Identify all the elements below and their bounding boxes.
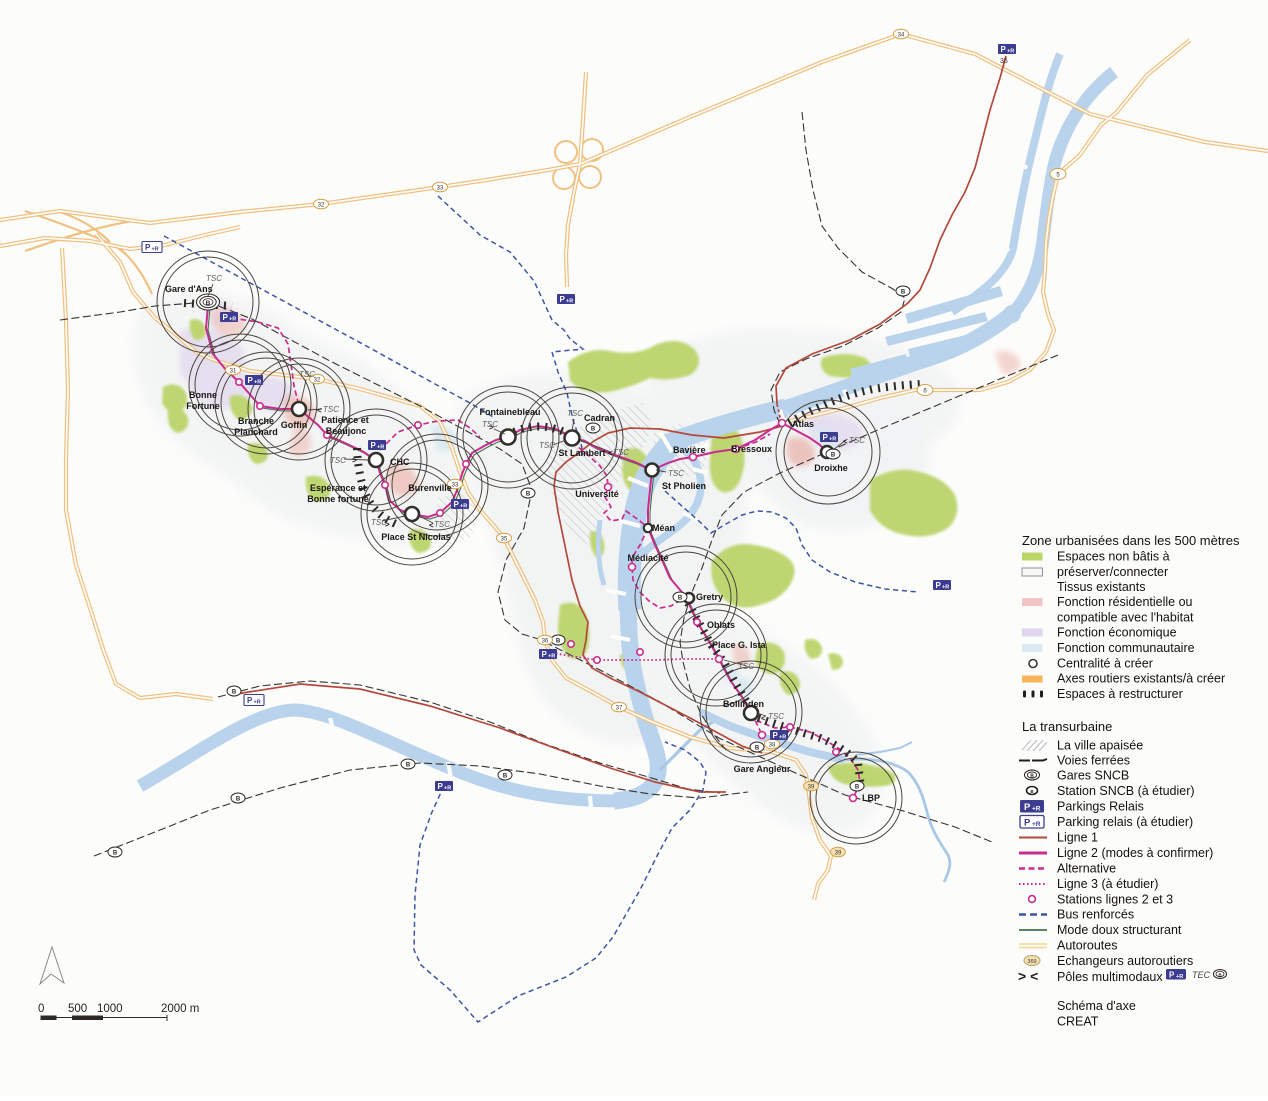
- svg-text:<: <: [761, 714, 766, 723]
- svg-text:500: 500: [68, 1003, 87, 1015]
- svg-text:Bavière: Bavière: [673, 445, 706, 455]
- svg-text:Médiacité: Médiacité: [627, 553, 668, 563]
- svg-text:Atlas: Atlas: [792, 419, 814, 429]
- svg-text:TSC: TSC: [738, 662, 754, 671]
- svg-text:Voies ferrées: Voies ferrées: [1057, 754, 1130, 768]
- svg-text:P: P: [1169, 971, 1175, 980]
- svg-text:Schéma d'axe: Schéma d'axe: [1057, 999, 1136, 1013]
- svg-text:TSC: TSC: [613, 448, 629, 457]
- svg-text:37: 37: [616, 706, 623, 712]
- svg-text:Fonction résidentielle ou: Fonction résidentielle ou: [1057, 595, 1193, 609]
- svg-text:CREAT: CREAT: [1057, 1015, 1099, 1029]
- svg-text:32: 32: [318, 203, 325, 209]
- svg-text:Branche: Branche: [238, 416, 274, 426]
- svg-text:2000 m: 2000 m: [161, 1003, 199, 1015]
- svg-text:+R: +R: [229, 317, 236, 323]
- svg-text:Goffin: Goffin: [281, 420, 308, 430]
- svg-text:<: <: [843, 437, 848, 446]
- svg-text:Gares SNCB: Gares SNCB: [1057, 769, 1129, 783]
- svg-text:St Pholien: St Pholien: [662, 481, 706, 491]
- svg-text:38: 38: [769, 743, 776, 749]
- svg-text:Planchard: Planchard: [234, 427, 278, 437]
- svg-text:Stations lignes 2 et 3: Stations lignes 2 et 3: [1057, 893, 1173, 907]
- svg-text:Fonction communautaire: Fonction communautaire: [1057, 641, 1195, 655]
- svg-text:Place G. Ista: Place G. Ista: [712, 640, 767, 650]
- svg-text:Bus renforcés: Bus renforcés: [1057, 908, 1134, 922]
- svg-text:33: 33: [437, 186, 444, 192]
- svg-text:TSC: TSC: [206, 274, 222, 283]
- svg-text:Droixhe: Droixhe: [814, 463, 848, 473]
- svg-text:Beaujonc: Beaujonc: [326, 426, 367, 436]
- svg-text:Alternative: Alternative: [1057, 862, 1116, 876]
- svg-text:TSC: TSC: [668, 469, 684, 478]
- svg-text:Bonne fortune: Bonne fortune: [307, 494, 369, 504]
- svg-text:Axes routiers existants/à crée: Axes routiers existants/à créer: [1057, 672, 1225, 686]
- svg-text:36: 36: [542, 639, 549, 645]
- svg-text:Fonction économique: Fonction économique: [1057, 626, 1177, 640]
- svg-text:Pôles multimodaux: Pôles multimodaux: [1057, 970, 1163, 984]
- svg-text:Patience et: Patience et: [321, 415, 369, 425]
- svg-text:+R: +R: [1032, 821, 1041, 828]
- svg-text:0: 0: [38, 1003, 44, 1015]
- svg-text:St Lambert: St Lambert: [558, 448, 605, 458]
- svg-text:> <: > <: [1018, 968, 1038, 984]
- svg-text:35: 35: [501, 537, 508, 543]
- svg-text:>: >: [489, 423, 494, 432]
- svg-text:Parkings Relais: Parkings Relais: [1057, 800, 1144, 814]
- svg-text:Espérance et: Espérance et: [310, 483, 366, 493]
- svg-text:La ville apaisée: La ville apaisée: [1057, 739, 1143, 753]
- svg-text:Gare d'Ans: Gare d'Ans: [165, 284, 213, 294]
- svg-text:Ligne 3 (à étudier): Ligne 3 (à étudier): [1057, 877, 1158, 891]
- svg-text:39: 39: [835, 851, 842, 857]
- svg-text:>: >: [352, 456, 357, 465]
- svg-text:Gretry: Gretry: [696, 592, 723, 602]
- svg-text:Oblats: Oblats: [707, 620, 735, 630]
- svg-text:B: B: [1030, 774, 1034, 780]
- svg-text:Bressoux: Bressoux: [731, 444, 772, 454]
- svg-text:TSC: TSC: [567, 409, 583, 418]
- svg-text:TSC: TSC: [299, 370, 315, 379]
- svg-text:35: 35: [1000, 58, 1008, 65]
- svg-text:Echangeurs autoroutiers: Echangeurs autoroutiers: [1057, 954, 1193, 968]
- svg-text:Ligne 2 (modes à confirmer): Ligne 2 (modes à confirmer): [1057, 846, 1213, 860]
- svg-text:+R: +R: [1176, 974, 1183, 980]
- svg-text:Parking relais (à étudier): Parking relais (à étudier): [1057, 815, 1193, 829]
- svg-text:Fortune: Fortune: [186, 401, 220, 411]
- svg-text:TEC: TEC: [1192, 970, 1211, 980]
- svg-text:P: P: [1024, 802, 1031, 813]
- svg-text:Ligne 1: Ligne 1: [1057, 831, 1098, 845]
- svg-text:Cadran: Cadran: [584, 413, 615, 423]
- svg-text:P: P: [1024, 818, 1031, 829]
- svg-text:Zone urbanisées dans les 500 m: Zone urbanisées dans les 500 mètres: [1022, 533, 1240, 548]
- svg-text:compatible avec l'habitat: compatible avec l'habitat: [1057, 611, 1194, 625]
- svg-text:P: P: [223, 313, 229, 322]
- svg-text:Tissus existants: Tissus existants: [1057, 580, 1145, 594]
- svg-text:préserver/connecter: préserver/connecter: [1057, 565, 1168, 579]
- svg-text:B: B: [206, 300, 211, 307]
- svg-text:>: >: [385, 520, 390, 529]
- svg-text:TSC: TSC: [330, 456, 346, 465]
- svg-text:<: <: [429, 521, 434, 530]
- svg-text:Gare Angleur: Gare Angleur: [734, 764, 791, 774]
- svg-text:+R: +R: [152, 247, 159, 253]
- svg-text:39: 39: [808, 785, 815, 791]
- svg-text:1000: 1000: [97, 1003, 123, 1015]
- svg-text:P: P: [145, 243, 151, 252]
- svg-text:Fontainebleau: Fontainebleau: [479, 407, 540, 417]
- svg-text:Université: Université: [575, 489, 619, 499]
- svg-text:TSC: TSC: [849, 436, 865, 445]
- svg-text:Bonne: Bonne: [189, 390, 217, 400]
- svg-text:TSC: TSC: [434, 520, 450, 529]
- svg-text:369: 369: [1027, 959, 1036, 965]
- svg-text:+R: +R: [1032, 806, 1041, 813]
- svg-text:LBP: LBP: [862, 793, 880, 803]
- svg-text:33: 33: [452, 483, 459, 489]
- svg-text:Mode doux structurant: Mode doux structurant: [1057, 923, 1182, 937]
- svg-text:La transurbaine: La transurbaine: [1022, 719, 1112, 734]
- svg-text:TSC: TSC: [539, 441, 555, 450]
- svg-text:TSC: TSC: [768, 712, 784, 721]
- svg-text:TSC: TSC: [323, 405, 339, 414]
- svg-text:<: <: [608, 449, 613, 458]
- svg-text:Centralité à créer: Centralité à créer: [1057, 657, 1153, 671]
- svg-text:Espaces non bâtis à: Espaces non bâtis à: [1057, 550, 1170, 564]
- svg-text:Méan: Méan: [652, 523, 675, 533]
- svg-text:Burenville: Burenville: [408, 483, 452, 493]
- svg-text:B: B: [591, 427, 596, 433]
- svg-text:<: <: [317, 406, 322, 415]
- svg-text:Bollinden: Bollinden: [723, 699, 764, 709]
- svg-text:Place St Nicolas: Place St Nicolas: [381, 532, 451, 542]
- svg-text:CHC: CHC: [390, 457, 410, 467]
- svg-text:31: 31: [230, 369, 237, 375]
- svg-text:34: 34: [898, 33, 905, 39]
- svg-text:Autoroutes: Autoroutes: [1057, 939, 1117, 953]
- svg-text:Espaces à restructurer: Espaces à restructurer: [1057, 687, 1183, 701]
- svg-text:Station SNCB (à étudier): Station SNCB (à étudier): [1057, 784, 1195, 798]
